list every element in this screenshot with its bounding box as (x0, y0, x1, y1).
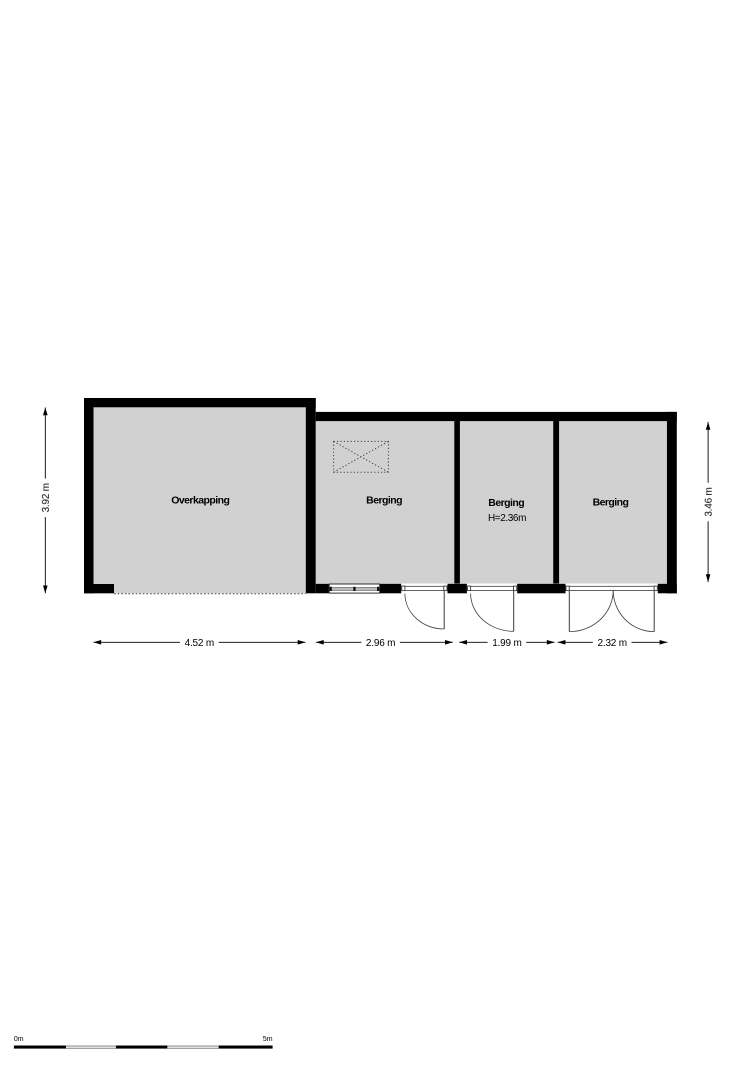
svg-text:3.46 m: 3.46 m (704, 487, 715, 516)
svg-text:5m: 5m (263, 1036, 273, 1043)
svg-text:H=2.36m: H=2.36m (488, 513, 526, 524)
svg-text:Berging: Berging (593, 496, 629, 508)
svg-text:Berging: Berging (366, 495, 402, 507)
svg-text:4.52 m: 4.52 m (185, 638, 214, 649)
svg-text:2.96 m: 2.96 m (366, 638, 395, 649)
svg-text:0m: 0m (14, 1036, 24, 1043)
svg-text:Overkapping: Overkapping (171, 494, 229, 506)
svg-text:3.92 m: 3.92 m (41, 483, 52, 512)
svg-text:Berging: Berging (488, 497, 524, 509)
svg-text:2.32 m: 2.32 m (598, 638, 627, 649)
svg-text:1.99 m: 1.99 m (492, 638, 521, 649)
